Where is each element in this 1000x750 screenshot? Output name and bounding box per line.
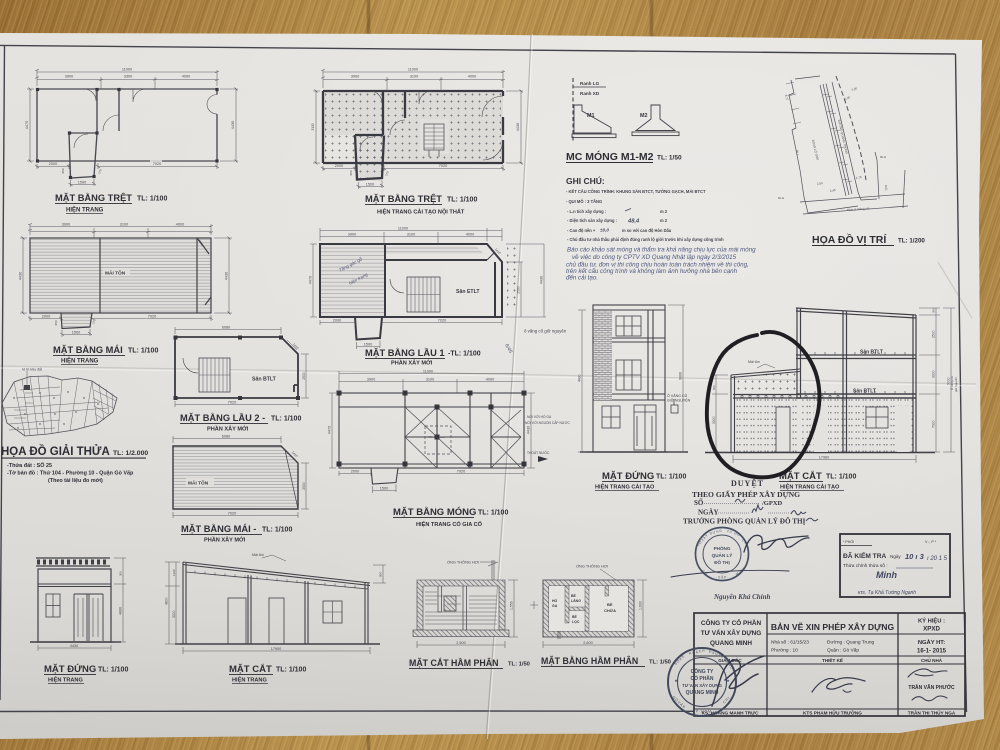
svg-text:3900: 3900 [351,75,359,79]
svg-text:7020: 7020 [148,314,156,318]
svg-text:MẶT BẰNG LẦU 1: MẶT BẰNG LẦU 1 [365,348,445,358]
svg-text:6/45: 6/45 [503,343,513,355]
svg-text:MẶT BẰNG MÓNG: MẶT BẰNG MÓNG [393,506,476,518]
svg-text:ĐÃ KIỂM TRA: ĐÃ KIỂM TRA [843,551,886,560]
svg-text:4800: 4800 [165,597,169,605]
svg-text:2,600: 2,600 [583,641,593,645]
svg-text:ĸτs. Tạ Khả Tường Ngạnh: ĸτs. Tạ Khả Tường Ngạnh [858,589,916,596]
svg-text:1500: 1500 [366,183,374,187]
svg-text:NGÀY HT:: NGÀY HT: [918,639,945,646]
svg-text:PHẦN XÂY MỚI: PHẦN XÂY MỚI [207,425,249,433]
svg-text:3300: 3300 [172,610,176,618]
svg-text:4470: 4470 [309,276,313,284]
svg-text:TL: 1/100: TL: 1/100 [447,197,477,204]
svg-text:48,4: 48,4 [627,219,640,225]
svg-text:ỐNG THÔNG HƠI: ỐNG THÔNG HƠI [576,564,608,569]
svg-text:Quận : Gò Vấp: Quận : Gò Vấp [827,648,859,654]
svg-text:m 2: m 2 [660,218,668,223]
svg-text:HIỆN TRANG: HIỆN TRANG [232,676,267,684]
svg-text:TƯ VẤN XÂY DỰNG: TƯ VẤN XÂY DỰNG [701,627,762,637]
svg-text:11000: 11000 [423,369,433,373]
svg-text:KTS PHẠM HỮU TRƯỜNG: KTS PHẠM HỮU TRƯỜNG [803,709,862,716]
svg-text:4430: 4430 [19,272,23,280]
svg-text:Đường : Quang Trung: Đường : Quang Trung [827,640,874,646]
svg-text:(Theo tài liệu đo mới): (Theo tài liệu đo mới) [48,478,103,484]
svg-text:MẶT BẰNG TRỆT: MẶT BẰNG TRỆT [365,193,442,204]
svg-text:4470: 4470 [25,121,29,129]
svg-text:TL: 1/50: TL: 1/50 [649,660,671,666]
svg-text:CÔNG TY: CÔNG TY [691,667,714,675]
svg-text:TL: 1/100: TL: 1/100 [271,416,301,423]
svg-text:TL: 1/200: TL: 1/200 [898,238,925,245]
svg-text:4000: 4000 [182,75,190,79]
svg-text:TL: 1/100: TL: 1/100 [826,474,856,481]
svg-text:NGÀY: NGÀY [698,509,719,517]
svg-text:4430: 4430 [578,374,582,382]
svg-text:MẶT CẮT HẦM PHÂN: MẶT CẮT HẦM PHÂN [409,657,498,668]
svg-text:Thửa chỉnh thửa số :: Thửa chỉnh thửa số : [843,562,888,569]
svg-text:PHẦN XÂY MỚI: PHẦN XÂY MỚI [204,536,246,544]
svg-text:4,45: 4,45 [829,188,836,193]
svg-text:3300: 3300 [932,370,936,378]
svg-text:TƯ VẤN XÂY DỰNG: TƯ VẤN XÂY DỰNG [682,683,722,688]
svg-text:HIỆN TRANG: HIỆN TRANG [48,676,83,684]
svg-text:2000: 2000 [333,318,341,322]
svg-text:TL: 1/100: TL: 1/100 [128,348,158,355]
svg-text:MẶT BẰNG MÁI -: MẶT BẰNG MÁI - [181,524,256,534]
svg-text:HIỆN TRANG CẢI TẠO NỘI THẤT: HIỆN TRANG CẢI TẠO NỘI THẤT [377,208,465,216]
svg-text:2000: 2000 [42,314,50,318]
svg-text:* PHỐI: * PHỐI [843,539,854,544]
svg-text:Sân BTLT: Sân BTLT [860,350,883,356]
svg-text:3100: 3100 [426,377,434,381]
svg-text:Ranh LG: Ranh LG [580,81,600,86]
svg-text:300: 300 [932,308,936,313]
svg-text:về việc do công ty CPTV XD Qua: về việc do công ty CPTV XD Quang Nhật lậ… [572,254,737,261]
svg-text:3100: 3100 [407,232,415,236]
svg-text:11000: 11000 [398,226,408,230]
svg-text:ĐÔ THỊ: ĐÔ THỊ [714,558,730,565]
svg-text:LẮNG: LẮNG [571,598,581,603]
svg-text:đến cải tạo.: đến cải tạo. [566,275,598,282]
svg-text:HIỆN TRANG CẢI TẠO: HIỆN TRANG CẢI TẠO [595,483,655,491]
svg-text:7020: 7020 [439,164,447,168]
svg-text:MẶT ĐỨNG: MẶT ĐỨNG [602,470,654,482]
svg-text:LỌC: LỌC [572,620,580,624]
svg-text:900: 900 [379,572,383,577]
svg-text:20 L: 20 L [795,149,800,156]
svg-text:4470: 4470 [328,426,332,434]
svg-text:CỔ PHẦN: CỔ PHẦN [690,675,713,682]
svg-text:950: 950 [54,320,58,325]
svg-text:1,550: 1,550 [510,601,514,610]
svg-text:4430: 4430 [231,121,235,129]
svg-text:1500: 1500 [380,486,388,490]
svg-text:V :, P *: V :, P * [925,540,937,544]
svg-text:3900: 3900 [367,377,375,381]
svg-text:NỐI VỚI NGUỒN CẤP NƯỚC: NỐI VỚI NGUỒN CẤP NƯỚC [525,420,570,425]
svg-text:4000: 4000 [176,222,184,226]
svg-text:3100: 3100 [410,75,418,79]
svg-text:3300: 3300 [124,75,132,79]
svg-text:S Ở X Â Y: S Ở X Â Y [695,532,709,547]
svg-text:11000: 11000 [408,68,418,72]
svg-text:Hẻm xi măng nội: Hẻm xi măng nội [847,206,870,212]
svg-text:ı 20 1 5: ı 20 1 5 [927,556,948,562]
svg-text:BỂ: BỂ [607,602,613,607]
svg-text:HIỆN TRANG: HIỆN TRANG [61,357,99,365]
svg-text:/GPXD: /GPXD [761,500,783,507]
svg-text:5,40: 5,40 [851,86,858,92]
svg-text:Mái tôn: Mái tôn [748,360,760,364]
svg-text:1,600: 1,600 [639,601,643,610]
svg-text:2530: 2530 [302,482,306,490]
svg-text:Mái tôn: Mái tôn [252,553,264,557]
svg-text:TL: 1/50: TL: 1/50 [657,155,682,162]
svg-text:6080: 6080 [222,325,230,329]
svg-text:MẶT BẰNG HẦM PHÂN: MẶT BẰNG HẦM PHÂN [541,655,638,666]
svg-text:TRẦN VĂN PHƯỚC: TRẦN VĂN PHƯỚC [908,683,955,691]
svg-text:MC MÓNG M1-M2: MC MÓNG M1-M2 [566,150,654,163]
svg-text:GIỮ NGUYÊN: GIỮ NGUYÊN [667,398,691,403]
svg-text:2530: 2530 [517,286,521,294]
svg-text:7020: 7020 [153,162,161,166]
svg-text:7020: 7020 [228,400,236,404]
svg-text:300: 300 [119,571,123,576]
svg-text:-TL: 1/100: -TL: 1/100 [448,351,481,358]
svg-text:CHỨA: CHỨA [604,608,616,613]
svg-text:10 ı 3: 10 ı 3 [905,552,925,561]
svg-text:S Ở K Ế: S Ở K Ế [673,653,686,666]
svg-text:4430: 4430 [70,644,78,648]
svg-text:PHÒNG: PHÒNG [714,544,731,551]
svg-text:Sân BTLT: Sân BTLT [252,377,277,383]
svg-text:950: 950 [61,168,65,173]
svg-text:TL: 1/100: TL: 1/100 [137,196,167,203]
svg-text:Ô VĂNG CŨ: Ô VĂNG CŨ [667,393,688,398]
svg-text:770: 770 [97,168,102,174]
svg-text:2000: 2000 [351,469,359,473]
svg-text:9000: 9000 [679,372,683,380]
svg-text:m 2: m 2 [660,209,668,214]
svg-text:770: 770 [91,318,96,324]
svg-text:3300: 3300 [712,416,716,424]
svg-text:MẶT BẰNG MÁI: MẶT BẰNG MÁI [53,345,123,355]
svg-text:6,40: 6,40 [844,95,851,101]
svg-text:7020: 7020 [438,318,446,322]
svg-text:HIỆN TRANG: HIỆN TRANG [66,206,104,214]
svg-text:2500: 2500 [932,330,936,338]
svg-text:- L.n tích xây dựng :: - L.n tích xây dựng : [567,209,606,214]
svg-text:THEO GIẤY PHÉP XÂY DỰNG: THEO GIẤY PHÉP XÂY DỰNG [692,489,800,499]
svg-text:1500: 1500 [72,330,80,334]
svg-text:MẶT BẰNG LẦU 2 -: MẶT BẰNG LẦU 2 - [180,413,265,423]
svg-text:Sân ETLT: Sân ETLT [456,289,480,295]
svg-text:16-1- 2015: 16-1- 2015 [917,649,947,655]
svg-text:M1: M1 [587,113,595,119]
svg-text:THIẾT KẾ: THIẾT KẾ [822,657,843,663]
svg-text:-Thửa đất : SỐ 25: -Thửa đất : SỐ 25 [7,462,52,469]
svg-text:TL: 1/2.000: TL: 1/2.000 [113,450,148,457]
svg-text:2,500: 2,500 [456,641,466,645]
svg-text:THOÁT NƯỚC: THOÁT NƯỚC [527,450,550,455]
svg-text:17900: 17900 [271,647,282,651]
svg-text:Hầm tự hoại: Hầm tự hoại [428,435,445,439]
svg-text:BỂ: BỂ [572,614,578,619]
svg-text:- KẾT CẤU CÔNG TRÌNH: KHUNG SÀ: - KẾT CẤU CÔNG TRÌNH: KHUNG SÀN BTCT, TƯ… [566,189,706,194]
svg-text:3100: 3100 [120,222,128,226]
svg-text:XPXD: XPXD [923,626,940,633]
svg-text:ỐNG THÔNG HƠI: ỐNG THÔNG HƠI [447,560,479,565]
svg-text:TL: 1/100: TL: 1/100 [478,510,508,517]
svg-text:7020: 7020 [457,469,465,473]
svg-text:GA: GA [552,604,558,608]
svg-text:6080: 6080 [222,434,230,438]
svg-text:CÔNG TY CỔ PHẦN: CÔNG TY CỔ PHẦN [701,617,762,627]
svg-text:Ranh XD: Ranh XD [580,91,600,96]
svg-text:4800: 4800 [119,607,123,615]
svg-text:3130: 3130 [311,123,315,130]
svg-text:NỐI VỚI HỐ GA: NỐI VỚI HỐ GA [527,414,552,419]
svg-text:770: 770 [384,170,389,176]
svg-text:KÝ HIỆU :: KÝ HIỆU : [918,617,945,625]
svg-text:T P · H C M: T P · H C M [693,710,711,714]
svg-text:500: 500 [712,385,716,390]
svg-text:- QUI MÔ : 3 TẦNG: - QUI MÔ : 3 TẦNG [566,199,602,204]
svg-text:1500: 1500 [78,180,86,184]
svg-text:4430: 4430 [516,123,520,131]
svg-text:Phường : 10: Phường : 10 [771,648,798,654]
svg-text:RLG: RLG [880,155,887,159]
svg-text:Ngày: Ngày [890,554,901,559]
svg-text:17960: 17960 [819,456,830,460]
svg-text:7300: 7300 [932,420,936,428]
svg-text:ô văng cũ giữ nguyên: ô văng cũ giữ nguyên [524,329,567,334]
svg-text:- Diện tích sàn xây dựng :: - Diện tích sàn xây dựng : [567,218,617,223]
svg-text:HỌA ĐỒ VỊ TRÍ: HỌA ĐỒ VỊ TRÍ [812,233,887,246]
svg-text:2000: 2000 [49,162,57,166]
svg-text:DUYỆT: DUYỆT [731,479,764,488]
svg-text:QUANG MINH: QUANG MINH [686,690,719,696]
svg-text:giữ nguyên: giữ nguyên [954,377,958,392]
svg-text:4000: 4000 [466,232,474,236]
svg-text:Vị trí khu đất: Vị trí khu đất [22,368,42,372]
svg-text:HỐ: HỐ [552,598,558,603]
svg-text:- Cao độ nền +: - Cao độ nền + [567,228,596,233]
svg-text:HỌA ĐỒ GIẢI THỬA: HỌA ĐỒ GIẢI THỬA [1,445,110,458]
svg-text:11000: 11000 [122,68,132,72]
svg-text:Báo cáo khảo sát móng và thẩm: Báo cáo khảo sát móng và thẩm tra khả nă… [567,247,756,254]
svg-text:2530: 2530 [302,372,306,380]
svg-text:1300: 1300 [172,569,176,576]
svg-text:TL: 1/100: TL: 1/100 [262,527,292,534]
svg-text:MẶT CẮT: MẶT CẮT [229,664,272,675]
svg-text:4430: 4430 [527,426,531,434]
svg-text:7020: 7020 [228,511,236,515]
svg-text:3900: 3900 [348,232,356,236]
svg-text:8,01: 8,01 [884,185,888,191]
svg-text:Minh: Minh [876,570,897,580]
svg-text:GHI CHÚ:: GHI CHÚ: [566,175,605,186]
svg-text:TL: 1/100: TL: 1/100 [276,667,306,674]
svg-text:2000: 2000 [335,164,343,168]
svg-text:M2: M2 [640,113,648,119]
svg-text:BỂ: BỂ [571,593,577,598]
svg-text:8,77: 8,77 [784,94,789,101]
svg-text:QUANG MINH: QUANG MINH [710,640,752,647]
svg-text:1500: 1500 [364,342,372,346]
svg-text:2,53: 2,53 [816,181,823,186]
svg-text:3900: 3900 [65,75,73,79]
svg-text:Nguyễn Khá Chính: Nguyễn Khá Chính [713,593,771,601]
svg-text:TL: 1/100: TL: 1/100 [656,474,686,481]
svg-text:4430: 4430 [540,276,544,284]
svg-text:TL: 1/100: TL: 1/100 [98,667,128,674]
svg-text:4430: 4430 [225,272,229,280]
svg-text:m so với cao độ Hòn Dấu: m so với cao độ Hòn Dấu [622,228,672,233]
svg-text:- Chủ đầu tư nhà thầu phải địn: - Chủ đầu tư nhà thầu phải định đúng ran… [567,237,724,242]
svg-text:MẶT BẰNG TRỆT: MẶT BẰNG TRỆT [55,192,132,203]
svg-text:±0,0: ±0,0 [600,228,609,233]
svg-text:CHỦ NHÀ: CHỦ NHÀ [921,657,943,663]
svg-text:RLG: RLG [778,196,785,200]
svg-text:*: * [727,680,730,686]
svg-text:950: 950 [349,170,353,175]
svg-text:-Tờ bản đồ : Thứ 104 - Phường: -Tờ bản đồ : Thứ 104 - Phường 10 - Quận … [7,470,134,477]
svg-text:SỐ: SỐ [694,499,704,507]
svg-text:3900: 3900 [62,222,70,226]
svg-text:4000: 4000 [468,75,476,79]
svg-text:QUẢN LÝ: QUẢN LÝ [712,552,733,558]
svg-text:PHẦN XÂY MỚI: PHẦN XÂY MỚI [391,359,433,367]
svg-text:4000: 4000 [486,377,494,381]
svg-text:MẶT ĐỨNG: MẶT ĐỨNG [44,663,96,675]
svg-text:1,76: 1,76 [855,175,862,180]
svg-text:HIỆN TRANG CÓ GIA CỐ: HIỆN TRANG CÓ GIA CỐ [416,520,483,528]
svg-text:BẢN VẼ XIN PHÉP XÂY DỰNG: BẢN VẼ XIN PHÉP XÂY DỰNG [771,621,895,632]
svg-text:TL: 1/50: TL: 1/50 [508,662,530,668]
svg-text:TRƯỞNG PHÒNG QUẢN LÝ ĐÔ THỊ: TRƯỞNG PHÒNG QUẢN LÝ ĐÔ THỊ [683,516,806,526]
svg-text:Nhà số : 61/15/23: Nhà số : 61/15/23 [771,640,809,646]
svg-text:TRẦN THỊ THÚY NGA: TRẦN THỊ THÚY NGA [908,710,956,716]
svg-text:ĐOẠN LỘ GIỚI: ĐOẠN LỘ GIỚI [811,139,821,161]
svg-text:Sân BTLT: Sân BTLT [853,389,876,395]
svg-text:· V Ấ P ·: · V Ấ P · [716,576,728,580]
